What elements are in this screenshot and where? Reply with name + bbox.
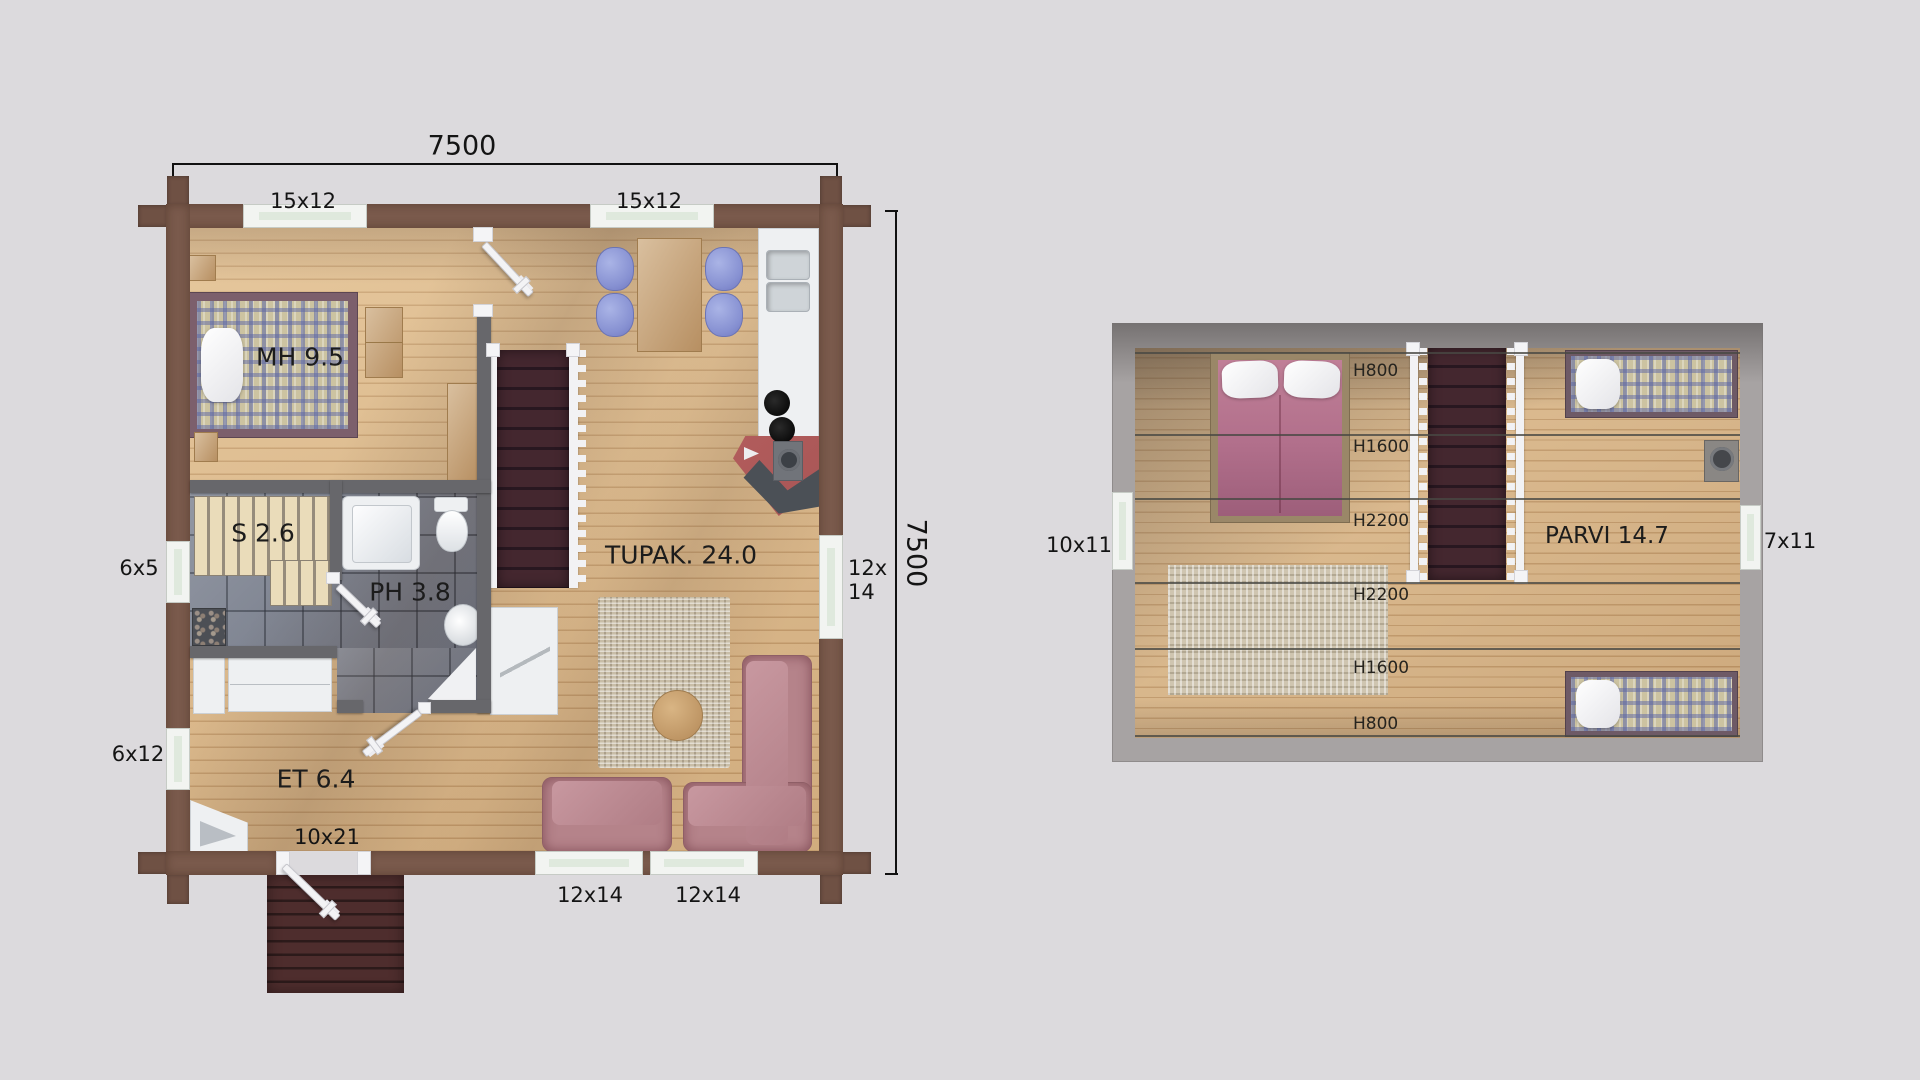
bed-pillow: [1221, 360, 1278, 399]
room-label-loft: PARVI 14.7: [1545, 523, 1669, 549]
room-label-entry: ET 6.4: [277, 765, 356, 794]
room-label-bedroom: MH 9.5: [256, 343, 344, 372]
height-line-h2200-top: [1135, 498, 1740, 500]
dimension-label-top: 7500: [428, 131, 497, 162]
log-stub: [138, 205, 168, 227]
dining-chair: [705, 293, 743, 337]
dimension-label-right: 7500: [901, 519, 932, 588]
kitchen-sink: [766, 282, 810, 312]
height-label-h2200-top: H2200: [1353, 511, 1409, 531]
height-label-h800-top: H800: [1353, 361, 1398, 381]
stair-rail-right: [1516, 345, 1524, 583]
screenshot-root: 7500 7500: [0, 0, 1920, 1080]
room-label-bathroom: PH 3.8: [369, 578, 451, 607]
dining-chair: [596, 247, 634, 291]
corner-sofa-cushions: [688, 786, 806, 826]
partition-bath-bottom-left: [190, 646, 337, 658]
door-post: [473, 304, 493, 317]
window-label-bottom-left: 12x14: [557, 883, 623, 907]
window-label-loft-right: 7x11: [1764, 529, 1817, 553]
window-label-loft-left: 10x11: [1046, 533, 1112, 557]
window-label-right-line2: 14: [848, 580, 887, 604]
shower-basin: [352, 505, 412, 563]
duvet-fold: [1279, 395, 1281, 513]
height-line-h1600-bottom: [1135, 648, 1740, 650]
loft-window-left: [1112, 492, 1133, 570]
log-stub: [841, 205, 871, 227]
log-stub: [167, 874, 189, 904]
bed-bench: [194, 432, 218, 462]
window-label-bottom-right: 12x14: [675, 883, 741, 907]
loft-window-right: [1740, 505, 1761, 570]
staircase-ground: [497, 350, 569, 588]
chimney-pipe: [1710, 447, 1734, 471]
loveseat-cushions: [552, 781, 662, 825]
height-label-h1600-top: H1600: [1353, 437, 1409, 457]
room-label-living: TUPAK. 24.0: [605, 541, 757, 570]
dining-chair: [596, 293, 634, 337]
bed-pillow: [201, 328, 243, 402]
fireplace-pipe: [778, 449, 800, 471]
log-stub: [167, 176, 189, 206]
height-label-h800-bottom: H800: [1353, 714, 1398, 734]
height-line-h2200-bottom: [1135, 582, 1740, 584]
window-label-top-right: 15x12: [616, 189, 682, 213]
window-bottom-right: [650, 851, 758, 875]
log-stub: [820, 874, 842, 904]
entry-cabinet-small: [193, 656, 225, 714]
cabinet-divider: [230, 684, 330, 685]
log-stub: [841, 852, 871, 874]
living-rug: [598, 597, 730, 768]
bed-pillow: [1283, 360, 1340, 399]
stair-post: [486, 343, 500, 357]
partition-hall: [477, 308, 491, 713]
door-label-entry: 10x21: [294, 825, 360, 849]
window-label-left-lower: 6x12: [112, 742, 165, 766]
wall-bottom-left-seg: [166, 851, 278, 875]
height-line-h1600-top: [1135, 434, 1740, 436]
partition-bath-bottom: [337, 700, 363, 713]
bed-pillow: [1576, 359, 1620, 409]
log-stub: [138, 852, 168, 874]
sideboard-detail: [500, 620, 550, 704]
height-line-h800-bottom: [1135, 735, 1740, 737]
window-bottom-left: [535, 851, 643, 875]
door-post: [326, 572, 340, 584]
stair-rail-left: [1410, 345, 1418, 583]
window-left-lower: [166, 728, 190, 790]
room-label-sauna: S 2.6: [231, 519, 295, 548]
dimension-line-top: [172, 163, 838, 177]
door-post: [473, 227, 493, 242]
window-label-top-left: 15x12: [270, 189, 336, 213]
stair-rail-right: [569, 345, 578, 588]
window-left-upper: [166, 541, 190, 603]
staircase-upper: [1428, 348, 1506, 580]
partition-bath-bottom: [428, 700, 491, 713]
height-line-h800-top: [1135, 352, 1740, 354]
nightstand: [189, 255, 216, 281]
toilet-bowl: [436, 510, 468, 552]
window-label-right-line1: 12x: [848, 556, 887, 580]
wardrobe-divider: [366, 342, 402, 343]
log-stub: [820, 176, 842, 206]
entry-deck: [267, 875, 404, 993]
kitchen-sink: [766, 250, 810, 280]
bed-pillow: [1576, 680, 1620, 728]
sauna-heater: [192, 608, 226, 646]
stair-post: [566, 343, 580, 357]
stove-burner: [764, 390, 790, 416]
window-label-left-upper: 6x5: [119, 556, 158, 580]
dining-chair: [705, 247, 743, 291]
window-right: [819, 535, 843, 639]
coffee-table: [652, 690, 703, 741]
window-label-right: 12x 14: [848, 556, 887, 604]
height-label-h2200-bottom: H2200: [1353, 585, 1409, 605]
height-label-h1600-bottom: H1600: [1353, 658, 1409, 678]
stairs-side-cabinet: [447, 383, 478, 485]
dining-table: [637, 238, 702, 352]
stair-rungs-right: [1507, 348, 1515, 580]
door-post: [357, 851, 371, 875]
partition-sauna-bath: [330, 480, 342, 580]
stair-rungs: [578, 350, 586, 586]
sauna-bench-lower: [270, 560, 332, 606]
stair-rungs-left: [1419, 348, 1427, 580]
stove-burner: [769, 417, 795, 443]
